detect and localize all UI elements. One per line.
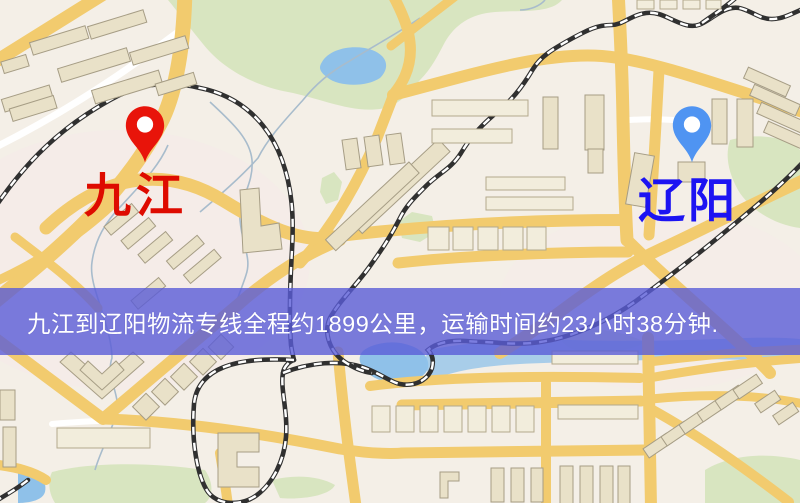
map-canvas[interactable] — [0, 0, 800, 503]
destination-pin-icon — [669, 104, 715, 166]
destination-label: 辽阳 — [638, 177, 738, 224]
destination-pin[interactable] — [669, 104, 715, 166]
route-info-banner: 九江到辽阳物流专线全程约1899公里，运输时间约23小时38分钟. — [0, 288, 800, 355]
route-info-text: 九江到辽阳物流专线全程约1899公里，运输时间约23小时38分钟. — [0, 305, 719, 339]
origin-pin-icon — [122, 104, 168, 166]
origin-label: 九江 — [84, 174, 188, 221]
origin-pin[interactable] — [122, 104, 168, 166]
map-view[interactable]: 九江 辽阳 九江到辽阳物流专线全程约1899公里，运输时间约23小时38分钟. — [0, 0, 800, 503]
